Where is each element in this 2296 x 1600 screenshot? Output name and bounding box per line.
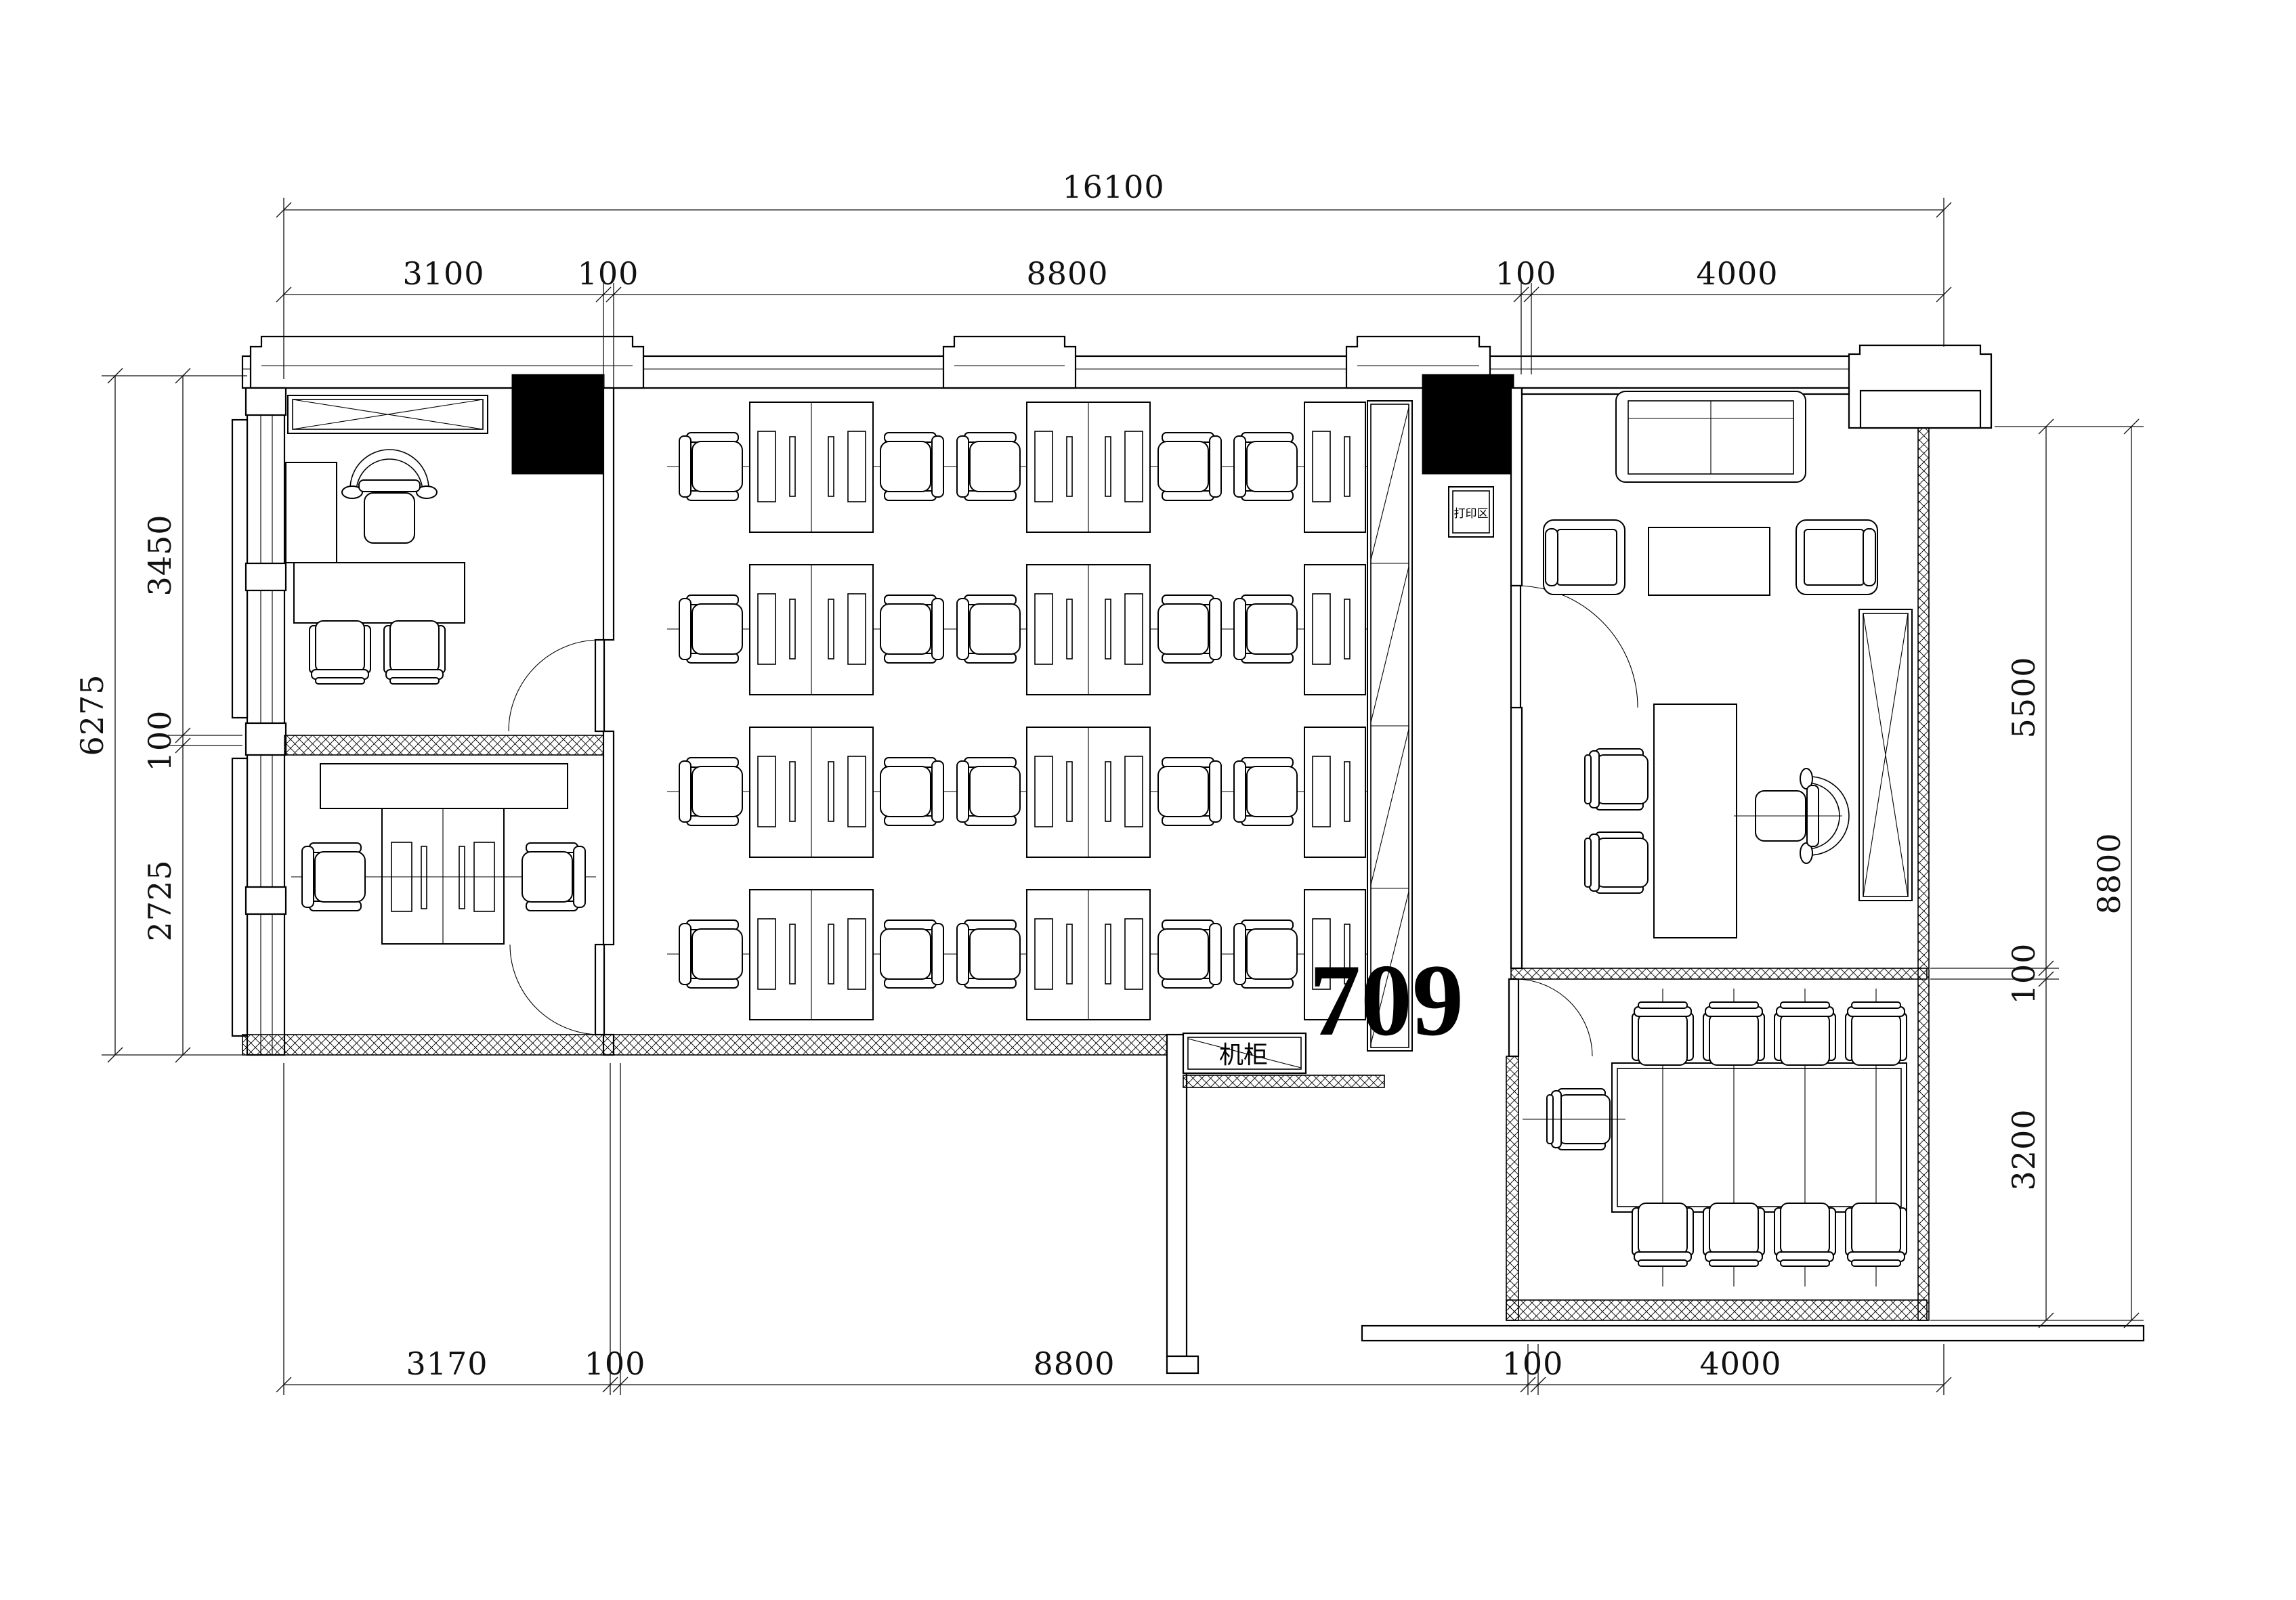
window-bay-2 bbox=[943, 337, 1076, 388]
window-bay-corner bbox=[1849, 345, 1991, 428]
dim-left-seg: 3450 bbox=[142, 514, 178, 596]
dim-top-total: 16100 bbox=[1062, 169, 1164, 205]
workstation-chair bbox=[1158, 920, 1221, 988]
partition-right-rooms bbox=[1511, 968, 1927, 979]
guest-chair bbox=[1585, 832, 1648, 893]
meeting-chair bbox=[1774, 1002, 1835, 1065]
room-number-label: 709 bbox=[1309, 943, 1464, 1057]
guest-chair bbox=[384, 621, 445, 684]
workstation-chair bbox=[880, 433, 943, 500]
dim-right-seg: 5500 bbox=[2005, 656, 2042, 738]
meeting-chair bbox=[1632, 1203, 1693, 1266]
dim-top-seg: 3100 bbox=[402, 255, 484, 292]
dim-left-seg: 2725 bbox=[142, 859, 178, 941]
workstation-chair bbox=[957, 920, 1020, 988]
corridor-wall-end bbox=[1167, 1356, 1198, 1373]
workstation-chair bbox=[880, 758, 943, 825]
dim-left-total: 6275 bbox=[74, 674, 110, 756]
dim-top-seg: 100 bbox=[578, 255, 639, 292]
workstation-chair bbox=[880, 920, 943, 988]
coffee-table bbox=[1649, 527, 1770, 595]
workstation-desk bbox=[1304, 565, 1365, 695]
credenza-cabinet bbox=[288, 395, 488, 433]
workstation-chair bbox=[957, 595, 1020, 663]
dim-bottom-seg: 4000 bbox=[1699, 1345, 1781, 1382]
workstation-chair bbox=[1158, 758, 1221, 825]
meeting-room-bottom-wall bbox=[1506, 1300, 1927, 1320]
armchair bbox=[1544, 520, 1625, 594]
loveseat-sofa bbox=[1616, 391, 1806, 482]
meeting-chair bbox=[1774, 1203, 1835, 1266]
partition-left-offices bbox=[603, 388, 614, 1055]
door-right-office bbox=[1511, 586, 1638, 708]
workstation-chair bbox=[522, 843, 585, 911]
workstation-chair bbox=[1234, 920, 1297, 988]
workstation-chair bbox=[679, 920, 742, 988]
meeting-table bbox=[1612, 1063, 1907, 1212]
dim-top-seg: 100 bbox=[1495, 255, 1557, 292]
workstation-chair bbox=[1234, 433, 1297, 500]
meeting-chair bbox=[1703, 1002, 1764, 1065]
print-area-box: 打印区 bbox=[1449, 487, 1493, 537]
workstation-chair bbox=[1234, 758, 1297, 825]
workstation-chair bbox=[1158, 595, 1221, 663]
bottom-step-band bbox=[1362, 1326, 2144, 1341]
dim-left-seg: 100 bbox=[142, 710, 178, 772]
print-area-label: 打印区 bbox=[1454, 507, 1489, 521]
workstation-chair bbox=[1158, 433, 1221, 500]
workstation-chair bbox=[679, 433, 742, 500]
workstation-chair bbox=[679, 595, 742, 663]
office-bottom-left bbox=[291, 764, 596, 944]
column-1 bbox=[512, 374, 604, 474]
armchair bbox=[1796, 520, 1877, 594]
desk-top-panel bbox=[320, 764, 568, 808]
workstation-chair bbox=[1234, 595, 1297, 663]
wardrobe-cabinet bbox=[1859, 609, 1912, 901]
dim-right-total: 8800 bbox=[2091, 832, 2127, 914]
workstation-desk bbox=[1304, 402, 1365, 532]
server-cabinet-label: 机柜 bbox=[1219, 1041, 1268, 1069]
executive-desk bbox=[294, 563, 465, 623]
meeting-chair bbox=[1846, 1203, 1907, 1266]
door-meeting-room bbox=[1509, 979, 1592, 1056]
meeting-chair bbox=[1703, 1203, 1764, 1266]
workstation-chair bbox=[957, 758, 1020, 825]
workstation-chair bbox=[957, 433, 1020, 500]
left-window-wall bbox=[232, 388, 286, 1055]
open-office-area bbox=[667, 402, 1368, 1020]
office-right bbox=[1544, 391, 1912, 938]
workstation-chair bbox=[302, 843, 365, 911]
dim-top-seg: 8800 bbox=[1026, 255, 1108, 292]
dim-bottom-seg: 100 bbox=[1502, 1345, 1564, 1382]
dim-top-seg: 4000 bbox=[1696, 255, 1778, 292]
desk-return bbox=[286, 462, 337, 563]
workstation-desk bbox=[1304, 727, 1365, 857]
bottom-left-wall bbox=[242, 1035, 1177, 1055]
meeting-room bbox=[1523, 989, 1907, 1287]
office-top-left bbox=[286, 395, 488, 684]
dim-right-seg: 3200 bbox=[2005, 1108, 2042, 1190]
dim-bottom-seg: 100 bbox=[584, 1345, 646, 1382]
right-exterior-wall bbox=[1918, 428, 1929, 1320]
executive-chair bbox=[342, 450, 437, 543]
door-office-top-left bbox=[509, 640, 604, 731]
guest-chair bbox=[1585, 749, 1648, 810]
partition-between-left-offices bbox=[284, 735, 603, 755]
manager-desk bbox=[1654, 704, 1737, 938]
meeting-chair bbox=[1846, 1002, 1907, 1065]
dim-bottom-seg: 8800 bbox=[1033, 1345, 1115, 1382]
workstation-chair bbox=[679, 758, 742, 825]
right-rooms-west-wall bbox=[1506, 388, 1522, 1320]
dim-bottom-seg: 3170 bbox=[406, 1345, 488, 1382]
floor-plan-canvas: 打印区 709 机柜 bbox=[0, 0, 2296, 1600]
meeting-chair bbox=[1632, 1002, 1693, 1065]
door-office-bottom-left bbox=[510, 945, 604, 1035]
workstation-chair bbox=[880, 595, 943, 663]
dim-right-seg: 100 bbox=[2005, 943, 2042, 1005]
column-2 bbox=[1422, 374, 1514, 474]
guest-chair bbox=[310, 621, 370, 684]
